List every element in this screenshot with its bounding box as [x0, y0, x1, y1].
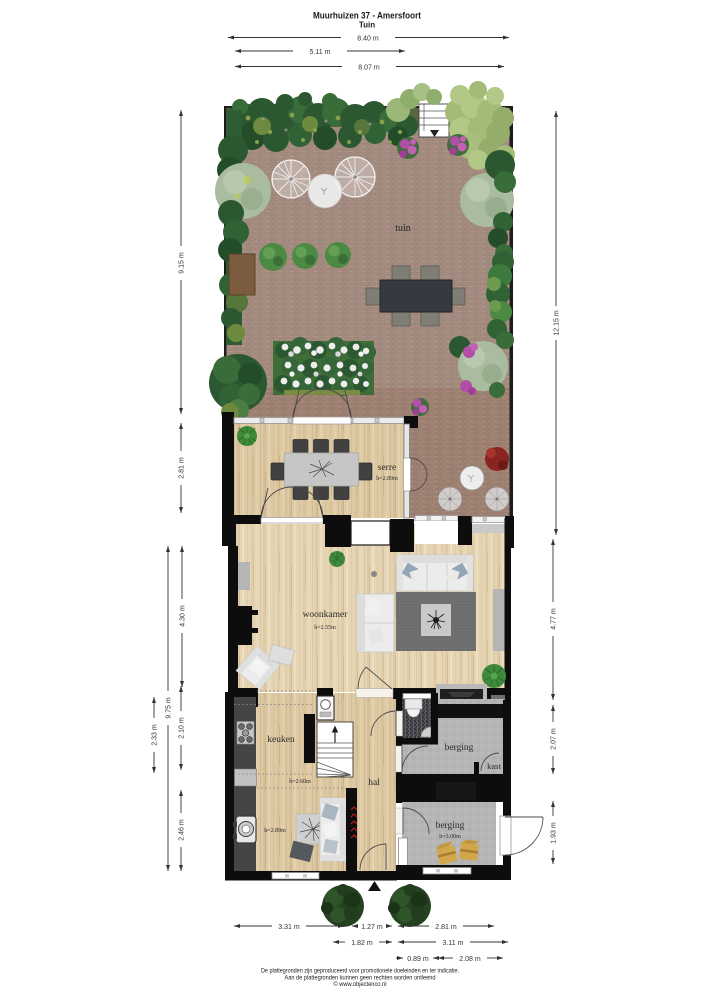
svg-text:h=2.60m: h=2.60m: [289, 779, 311, 785]
svg-text:hal: hal: [368, 778, 380, 788]
svg-text:1.27 m: 1.27 m: [361, 924, 383, 931]
svg-text:1.82 m: 1.82 m: [351, 940, 373, 947]
svg-text:4.30 m: 4.30 m: [180, 605, 187, 627]
svg-text:2.81 m: 2.81 m: [435, 924, 457, 931]
svg-text:2.10 m: 2.10 m: [179, 717, 186, 739]
svg-text:kast: kast: [487, 761, 501, 771]
svg-text:Muurhuizen 37 - Amersfoort: Muurhuizen 37 - Amersfoort: [313, 11, 421, 21]
svg-text:2.81 m: 2.81 m: [179, 457, 186, 479]
svg-text:8.40 m: 8.40 m: [357, 35, 379, 42]
svg-text:© www.objectenco.nl: © www.objectenco.nl: [334, 981, 387, 988]
svg-text:Tuin: Tuin: [359, 21, 375, 30]
svg-text:5.11 m: 5.11 m: [310, 49, 331, 56]
svg-text:berging: berging: [445, 743, 474, 753]
svg-text:h=3.00m: h=3.00m: [439, 834, 461, 840]
svg-text:1.93 m: 1.93 m: [551, 822, 558, 844]
svg-text:keuken: keuken: [267, 735, 295, 745]
svg-text:2.07 m: 2.07 m: [551, 728, 558, 750]
svg-text:h=2.89m: h=2.89m: [264, 828, 286, 834]
svg-text:tuin: tuin: [395, 223, 411, 234]
svg-text:2.46 m: 2.46 m: [179, 819, 186, 841]
svg-text:h=2.89m: h=2.89m: [376, 476, 398, 482]
svg-text:0.89 m: 0.89 m: [407, 956, 429, 963]
svg-text:h=2.55m: h=2.55m: [314, 625, 336, 631]
svg-text:8.07 m: 8.07 m: [358, 64, 380, 71]
svg-text:berging: berging: [436, 821, 465, 831]
svg-text:serre: serre: [378, 463, 396, 473]
svg-text:3.11 m: 3.11 m: [443, 940, 464, 947]
svg-text:2.08 m: 2.08 m: [459, 956, 481, 963]
svg-text:3.31 m: 3.31 m: [278, 924, 300, 931]
svg-text:woonkamer: woonkamer: [303, 610, 349, 620]
svg-text:9.75 m: 9.75 m: [166, 697, 173, 719]
svg-text:2.33 m: 2.33 m: [152, 724, 159, 746]
svg-text:9.15 m: 9.15 m: [179, 252, 186, 274]
svg-text:4.77 m: 4.77 m: [551, 608, 558, 630]
svg-text:De plattegronden zijn geproduc: De plattegronden zijn geproduceerd voor …: [261, 968, 459, 975]
svg-text:12.15 m: 12.15 m: [554, 310, 561, 335]
